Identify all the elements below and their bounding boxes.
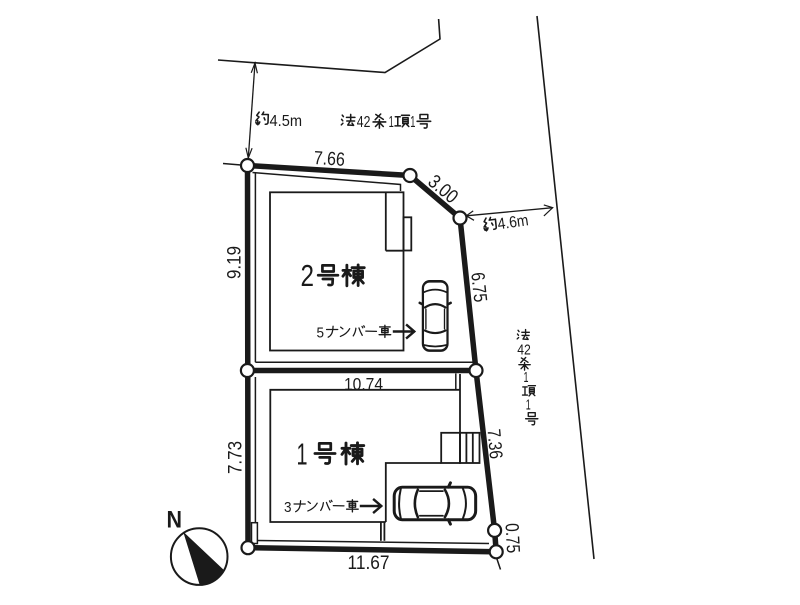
svg-text:1: 1: [526, 398, 531, 414]
svg-text:5: 5: [317, 325, 325, 342]
svg-text:4.6m: 4.6m: [497, 212, 530, 233]
svg-text:3: 3: [284, 499, 292, 516]
svg-text:7.36: 7.36: [484, 428, 508, 460]
svg-text:1: 1: [524, 370, 529, 386]
svg-text:11.67: 11.67: [348, 553, 390, 574]
svg-text:3.00: 3.00: [424, 171, 463, 209]
svg-text:42: 42: [517, 343, 531, 359]
svg-text:4.5m: 4.5m: [270, 113, 303, 130]
svg-text:2: 2: [301, 258, 315, 293]
svg-text:0.75: 0.75: [501, 523, 524, 554]
svg-text:1: 1: [410, 114, 415, 131]
svg-text:6.75: 6.75: [466, 271, 490, 303]
svg-text:7.73: 7.73: [226, 441, 247, 474]
svg-text:1: 1: [389, 114, 394, 131]
svg-text:10.74: 10.74: [344, 374, 383, 394]
svg-text:1: 1: [297, 437, 308, 472]
svg-text:N: N: [167, 507, 183, 534]
svg-text:42: 42: [357, 114, 371, 131]
svg-text:9.19: 9.19: [225, 246, 246, 279]
svg-text:7.66: 7.66: [313, 148, 345, 171]
